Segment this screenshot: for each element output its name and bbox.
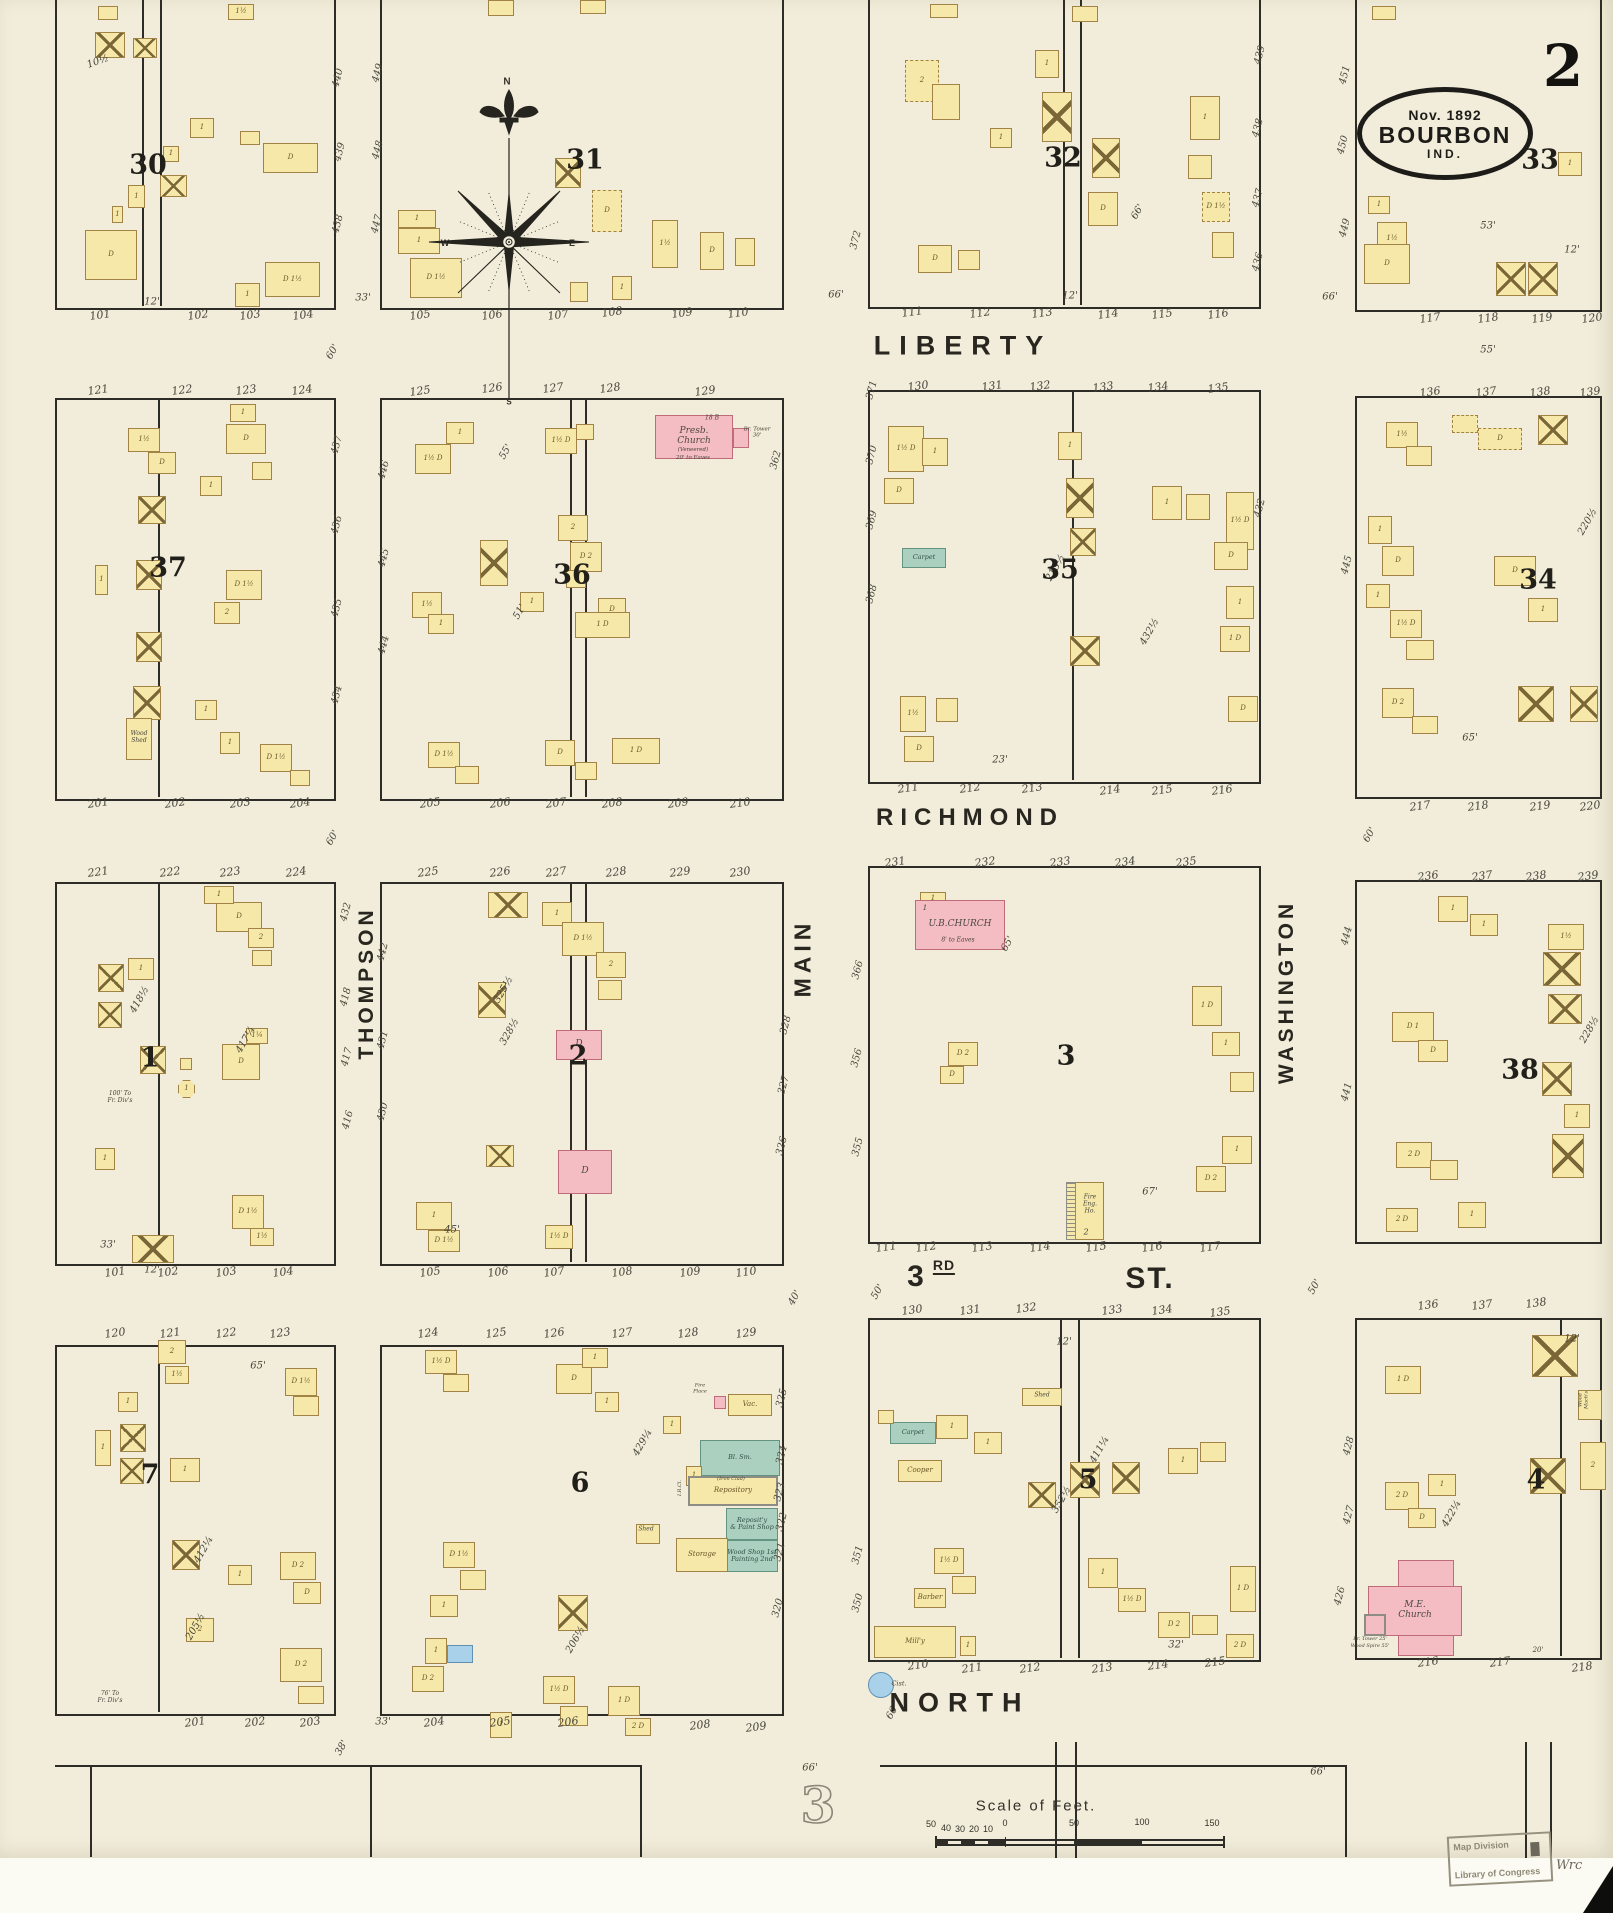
city-block bbox=[55, 882, 336, 1266]
map-line bbox=[1074, 1840, 1142, 1845]
lot-number: 103 bbox=[215, 1264, 238, 1280]
building bbox=[1496, 262, 1526, 296]
lot-number: 228 bbox=[605, 864, 628, 880]
building: 1 bbox=[1368, 196, 1390, 214]
building: 1 bbox=[922, 438, 948, 466]
building: D bbox=[226, 424, 266, 454]
building: D bbox=[1408, 1508, 1436, 1528]
lot-number: 128 bbox=[677, 1325, 700, 1341]
lot-number: 119 bbox=[1531, 310, 1554, 326]
building bbox=[1112, 1462, 1140, 1494]
lot-number: 213 bbox=[1091, 1660, 1114, 1676]
building: 1 bbox=[1470, 914, 1498, 936]
building: 1 bbox=[936, 1415, 968, 1439]
building: 1 bbox=[430, 1595, 458, 1617]
building bbox=[1212, 232, 1234, 258]
map-line bbox=[961, 1839, 975, 1846]
lot-number: 137 bbox=[1471, 1297, 1494, 1313]
lot-number: 111 bbox=[875, 1239, 898, 1255]
building: 1 bbox=[1035, 50, 1059, 78]
building bbox=[252, 462, 272, 480]
building: 1 bbox=[95, 1148, 115, 1170]
building bbox=[878, 1410, 894, 1424]
building bbox=[1538, 415, 1568, 445]
block-number: 7 bbox=[141, 1460, 160, 1491]
map-annotation: 67' bbox=[1142, 1186, 1157, 1198]
map-annotation: 20' bbox=[1533, 1646, 1544, 1654]
map-annotation: 38' bbox=[333, 1738, 351, 1757]
building: 2 bbox=[248, 928, 274, 948]
sheet-number: 2 bbox=[1543, 32, 1583, 100]
building bbox=[136, 632, 162, 662]
building: Cooper bbox=[898, 1460, 942, 1482]
map-annotation: 33' bbox=[100, 1239, 115, 1251]
building bbox=[598, 980, 622, 1000]
lot-number: 214 bbox=[1147, 1657, 1170, 1673]
building: D bbox=[263, 143, 318, 173]
building: 1 bbox=[990, 128, 1012, 148]
building: 1 bbox=[230, 404, 256, 422]
block-number: 5 bbox=[1079, 1465, 1098, 1496]
building bbox=[958, 250, 980, 270]
building bbox=[1518, 686, 1554, 722]
building bbox=[714, 1396, 726, 1409]
lot-number: 125 bbox=[485, 1325, 508, 1341]
house-number: 445 bbox=[1339, 554, 1355, 575]
building: D 1½ bbox=[428, 742, 460, 768]
lot-number: 217 bbox=[1489, 1654, 1512, 1670]
building: 2 bbox=[214, 602, 240, 624]
scale-tick-label: 0 bbox=[1002, 1818, 1007, 1828]
lot-number: 130 bbox=[901, 1302, 924, 1318]
building: D 1½ bbox=[1202, 192, 1230, 222]
building: D bbox=[1228, 696, 1258, 722]
building: 1 D bbox=[1230, 1566, 1256, 1612]
building: 1 bbox=[190, 118, 214, 138]
map-annotation: 65' bbox=[250, 1360, 265, 1372]
building: Wood Shop 1st Painting 2nd bbox=[726, 1540, 778, 1572]
house-number: 451 bbox=[1337, 64, 1353, 85]
lot-number: 201 bbox=[184, 1714, 207, 1730]
map-line bbox=[988, 1839, 1005, 1846]
lot-number: 109 bbox=[679, 1264, 702, 1280]
map-annotation: 12' bbox=[1564, 1333, 1579, 1345]
building: 1½ D bbox=[545, 428, 577, 454]
building: 1 bbox=[128, 958, 154, 980]
building: D bbox=[700, 232, 724, 270]
lot-number: 118 bbox=[1477, 310, 1500, 326]
lot-number: 136 bbox=[1417, 1297, 1440, 1313]
lot-number: 117 bbox=[1199, 1239, 1222, 1255]
building bbox=[1452, 415, 1478, 433]
building: 1½ bbox=[228, 4, 254, 20]
lot-number: 123 bbox=[269, 1325, 292, 1341]
building: Reposit'y & Paint Shop bbox=[726, 1508, 778, 1540]
library-of-congress-stamp: Map Division Library of Congress bbox=[1447, 1831, 1553, 1886]
lot-number: 115 bbox=[1151, 306, 1174, 322]
building bbox=[1430, 1160, 1458, 1180]
building bbox=[460, 1570, 486, 1590]
building: 2 bbox=[596, 952, 626, 978]
building: 1 D bbox=[612, 738, 660, 764]
building: 1 bbox=[195, 700, 217, 720]
building: D bbox=[556, 1364, 592, 1394]
map-annotation: 23' bbox=[992, 754, 1007, 766]
house-number: 351 bbox=[850, 1544, 866, 1565]
lot-number: 202 bbox=[244, 1714, 267, 1730]
map-annotation: Wood Mach's bbox=[1578, 1391, 1590, 1409]
lot-number: 108 bbox=[611, 1264, 634, 1280]
building bbox=[98, 1002, 122, 1028]
lot-number: 114 bbox=[1029, 1239, 1052, 1255]
house-number: 426 bbox=[1332, 1585, 1348, 1606]
lot-number: 202 bbox=[164, 795, 187, 811]
building bbox=[1548, 994, 1582, 1024]
lot-number: 209 bbox=[745, 1719, 768, 1735]
street-label: THOMPSON bbox=[355, 906, 379, 1059]
lot-number: 209 bbox=[667, 795, 690, 811]
house-number: 372 bbox=[848, 229, 864, 250]
map-annotation: 20' to Eaves bbox=[676, 455, 710, 461]
building: Bl. Sm. bbox=[700, 1440, 780, 1476]
building: D bbox=[558, 1150, 612, 1194]
lot-number: 129 bbox=[735, 1325, 758, 1341]
map-annotation: 32' bbox=[1168, 1639, 1183, 1651]
lot-number: 216 bbox=[1417, 1654, 1440, 1670]
map-annotation: 66' bbox=[828, 289, 843, 301]
lot-number: 114 bbox=[1097, 306, 1120, 322]
lot-number: 113 bbox=[971, 1239, 994, 1255]
building bbox=[132, 1235, 174, 1263]
paper-sheet: 1½111DDD 1½1111D 1½D1½D121D1D 1½D1111½D1… bbox=[0, 0, 1613, 1858]
building: 1½ D bbox=[934, 1548, 964, 1574]
building bbox=[455, 766, 479, 784]
house-number: 418 bbox=[338, 986, 354, 1007]
building: D bbox=[85, 230, 137, 280]
building bbox=[1072, 6, 1098, 22]
building bbox=[930, 4, 958, 18]
building: 1 bbox=[446, 422, 474, 444]
map-annotation: (Veneered) bbox=[678, 447, 708, 453]
building: 1 bbox=[1190, 96, 1220, 140]
map-annotation: 2 bbox=[1083, 1227, 1088, 1236]
lot-number: 134 bbox=[1151, 1302, 1174, 1318]
map-line bbox=[1345, 1765, 1347, 1857]
map-annotation: 65' bbox=[1462, 732, 1477, 744]
map-line bbox=[585, 398, 587, 797]
scale-tick-label: 40 bbox=[941, 1823, 951, 1833]
building bbox=[580, 0, 606, 14]
map-annotation: 50' bbox=[869, 1282, 887, 1301]
lot-number: 220 bbox=[1579, 798, 1602, 814]
building: 1 bbox=[128, 185, 145, 208]
lot-number: 101 bbox=[89, 307, 112, 323]
lot-number: 218 bbox=[1571, 1659, 1594, 1675]
building bbox=[133, 38, 157, 58]
building: D bbox=[1418, 1040, 1448, 1062]
building: 1 bbox=[200, 476, 222, 496]
city-block bbox=[55, 398, 336, 801]
stamp-line2: Library of Congress bbox=[1455, 1866, 1547, 1881]
lot-number: 124 bbox=[417, 1325, 440, 1341]
lot-number: 227 bbox=[545, 864, 568, 880]
building: D bbox=[904, 736, 934, 762]
building: 1½ D bbox=[545, 1225, 573, 1249]
map-annotation: Wood Spire 55' bbox=[1351, 1644, 1390, 1650]
building bbox=[133, 686, 161, 720]
block-number: 37 bbox=[149, 553, 187, 584]
building: 1 bbox=[595, 1392, 619, 1412]
lot-number: 203 bbox=[229, 795, 252, 811]
building: 2 D bbox=[1396, 1142, 1432, 1168]
building: D 2 bbox=[1382, 688, 1414, 718]
lot-number: 123 bbox=[235, 382, 258, 398]
street-label: NORTH bbox=[890, 1688, 1031, 1719]
building: 1 bbox=[1168, 1448, 1198, 1474]
lot-number: 107 bbox=[543, 1264, 566, 1280]
building: D 2 bbox=[280, 1648, 322, 1682]
map-line bbox=[1005, 1837, 1006, 1847]
lot-number: 116 bbox=[1141, 1239, 1164, 1255]
lot-number: 102 bbox=[157, 1264, 180, 1280]
lot-number: 226 bbox=[489, 864, 512, 880]
lot-number: 121 bbox=[87, 382, 110, 398]
street-label: WASHINGTON bbox=[1275, 900, 1299, 1084]
lot-number: 221 bbox=[87, 864, 110, 880]
lot-number: 111 bbox=[901, 304, 924, 320]
building bbox=[1543, 952, 1581, 986]
lot-number: 203 bbox=[299, 1714, 322, 1730]
building: 1 bbox=[1226, 586, 1254, 619]
building: 1 bbox=[1428, 1474, 1456, 1496]
compass-rose-icon bbox=[420, 60, 600, 410]
lot-number: 124 bbox=[291, 382, 314, 398]
map-annotation: 60' bbox=[1361, 825, 1379, 844]
lot-number: 122 bbox=[171, 382, 194, 398]
building bbox=[447, 1645, 473, 1663]
building bbox=[735, 238, 755, 266]
building: 2 D bbox=[625, 1718, 651, 1736]
building bbox=[1070, 636, 1100, 666]
lot-number: 205 bbox=[419, 795, 442, 811]
building: 1½ D bbox=[888, 426, 924, 472]
block-number: 35 bbox=[1041, 555, 1079, 586]
lot-number: 104 bbox=[292, 307, 315, 323]
building: D bbox=[1088, 192, 1118, 226]
block-number: 30 bbox=[129, 150, 167, 181]
map-annotation: Fire Place bbox=[693, 1383, 707, 1395]
building: 1 bbox=[1152, 486, 1182, 520]
building: 1 bbox=[1366, 584, 1390, 608]
lot-number: 104 bbox=[272, 1264, 295, 1280]
building: D 1½ bbox=[265, 262, 320, 297]
building bbox=[180, 1058, 192, 1070]
house-number: 432 bbox=[338, 901, 354, 922]
city-block bbox=[1355, 396, 1602, 799]
building bbox=[936, 698, 958, 722]
lot-number: 121 bbox=[159, 1325, 182, 1341]
lot-number: 120 bbox=[1581, 310, 1604, 326]
building bbox=[1192, 1615, 1218, 1635]
street-label: LIBERTY bbox=[874, 331, 1053, 362]
block-number: 1 bbox=[141, 1043, 160, 1074]
building: Barber bbox=[914, 1588, 946, 1608]
scale-tick-label: 30 bbox=[955, 1824, 965, 1834]
building: 2 D bbox=[1385, 1482, 1419, 1510]
lot-number: 138 bbox=[1525, 1295, 1548, 1311]
lot-number: 110 bbox=[735, 1264, 758, 1280]
lot-number: 110 bbox=[727, 305, 750, 321]
building bbox=[1230, 1072, 1254, 1092]
map-annotation: 66' bbox=[802, 1762, 817, 1774]
scale-tick-label: 50 bbox=[926, 1819, 936, 1829]
next-sheet-number: 3 bbox=[801, 1776, 836, 1835]
building bbox=[240, 131, 260, 145]
building: 1 D bbox=[1385, 1366, 1421, 1394]
building: 1 bbox=[1088, 1558, 1118, 1588]
lot-number: 113 bbox=[1031, 305, 1054, 321]
map-annotation: Wood Shed bbox=[131, 731, 148, 745]
building: 1 bbox=[112, 206, 123, 223]
map-annotation: Br. Tower 25' bbox=[1353, 1637, 1387, 1643]
building bbox=[1186, 494, 1210, 520]
building: 1 bbox=[425, 1638, 447, 1664]
building bbox=[1406, 446, 1432, 466]
lot-number: 230 bbox=[729, 864, 752, 880]
building bbox=[443, 1374, 469, 1392]
building: D bbox=[918, 245, 952, 273]
building bbox=[486, 1145, 514, 1167]
map-line bbox=[570, 398, 572, 797]
title-city: BOURBON bbox=[1379, 122, 1512, 149]
map-annotation: 45' bbox=[444, 1224, 459, 1236]
scale-title: Scale of Feet. bbox=[976, 1798, 1097, 1815]
street-label: 3 bbox=[907, 1260, 925, 1294]
building: 1 bbox=[1212, 1032, 1240, 1056]
building: 1 bbox=[204, 886, 234, 904]
lot-number: 212 bbox=[959, 780, 982, 796]
lot-number: 206 bbox=[489, 795, 512, 811]
building bbox=[1372, 6, 1396, 20]
building: 1 bbox=[582, 1348, 608, 1368]
map-annotation: 18 B bbox=[705, 416, 719, 423]
building: D bbox=[1364, 244, 1410, 284]
scan-corner-shadow bbox=[1583, 1866, 1613, 1913]
lot-number: 204 bbox=[289, 795, 312, 811]
building: D 2 bbox=[1158, 1612, 1190, 1638]
house-number: 356 bbox=[849, 1047, 865, 1068]
street-label: RICHMOND bbox=[876, 804, 1064, 832]
building: D 1½ bbox=[562, 922, 604, 956]
map-annotation: 33' bbox=[375, 1716, 390, 1728]
lot-number: 222 bbox=[159, 864, 182, 880]
lot-number: 210 bbox=[907, 1657, 930, 1673]
building: 1 bbox=[1564, 1104, 1590, 1128]
lot-number: 216 bbox=[1211, 782, 1234, 798]
building: 1½ D bbox=[543, 1676, 575, 1704]
house-number: 450 bbox=[1335, 134, 1351, 155]
map-annotation: 12' bbox=[144, 1264, 159, 1276]
lot-number: 211 bbox=[961, 1660, 984, 1676]
building: 1 bbox=[1558, 152, 1582, 176]
building bbox=[576, 424, 594, 440]
lot-number: 213 bbox=[1021, 780, 1044, 796]
lot-number: 217 bbox=[1409, 798, 1432, 814]
building: 2 bbox=[558, 515, 588, 541]
map-line bbox=[370, 1765, 372, 1857]
building: D bbox=[148, 452, 176, 474]
lot-number: 105 bbox=[419, 1264, 442, 1280]
building: 1 bbox=[220, 732, 240, 754]
lot-number: 103 bbox=[239, 307, 262, 323]
lot-number: 106 bbox=[487, 1264, 510, 1280]
building: D bbox=[940, 1066, 964, 1084]
building bbox=[1066, 1182, 1076, 1240]
building bbox=[1542, 1062, 1572, 1096]
building bbox=[575, 762, 597, 780]
map-annotation: 66' bbox=[1310, 1766, 1325, 1778]
building: 1 bbox=[974, 1432, 1002, 1454]
house-number: 417 bbox=[339, 1046, 355, 1067]
building: 1½ D bbox=[425, 1350, 457, 1374]
map-annotation: 33' bbox=[355, 292, 370, 304]
map-annotation: Shed bbox=[638, 1527, 653, 1534]
map-annotation: 60' bbox=[324, 342, 342, 361]
lot-number: 215 bbox=[1204, 1654, 1227, 1670]
house-number: 416 bbox=[340, 1109, 356, 1130]
building bbox=[1570, 686, 1598, 722]
street-label: RD bbox=[933, 1257, 955, 1275]
block-number: 4 bbox=[1527, 1465, 1546, 1496]
lot-number: 112 bbox=[969, 305, 992, 321]
building bbox=[1406, 640, 1434, 660]
lot-number: 212 bbox=[1019, 1660, 1042, 1676]
building: 1 bbox=[663, 1416, 681, 1434]
lot-number: 224 bbox=[285, 864, 308, 880]
lot-number: 219 bbox=[1529, 798, 1552, 814]
building: 2 D bbox=[1386, 1208, 1418, 1232]
map-line bbox=[640, 1765, 642, 1857]
building bbox=[488, 0, 514, 16]
map-line bbox=[90, 1765, 92, 1857]
building: 1 D bbox=[575, 612, 630, 638]
building bbox=[98, 6, 118, 20]
block-number: 32 bbox=[1044, 143, 1082, 174]
building bbox=[1092, 138, 1120, 178]
building: D 1½ bbox=[260, 744, 292, 772]
map-sheet-scan: 1½111DDD 1½1111D 1½D1½D121D1D 1½D1111½D1… bbox=[0, 0, 1613, 1913]
building: 1 bbox=[960, 1636, 976, 1656]
house-number: 441 bbox=[1339, 1081, 1355, 1102]
scale-tick-label: 100 bbox=[1134, 1817, 1149, 1827]
building: 1½ bbox=[1548, 924, 1584, 950]
building: 1 bbox=[1458, 1202, 1486, 1228]
map-annotation: 66' bbox=[1322, 291, 1337, 303]
lot-number: 201 bbox=[87, 795, 110, 811]
building: D bbox=[1214, 542, 1248, 570]
building bbox=[298, 1686, 324, 1704]
building: 1½ bbox=[652, 220, 678, 268]
lot-number: 225 bbox=[417, 864, 440, 880]
building bbox=[1070, 528, 1096, 556]
building: 1 bbox=[1368, 516, 1392, 544]
lot-number: 109 bbox=[671, 305, 694, 321]
lot-number: 131 bbox=[959, 1302, 982, 1318]
map-annotation: 53' bbox=[1480, 220, 1495, 232]
lot-number: 127 bbox=[611, 1325, 634, 1341]
building: Vac. bbox=[728, 1394, 772, 1416]
building bbox=[120, 1424, 146, 1452]
